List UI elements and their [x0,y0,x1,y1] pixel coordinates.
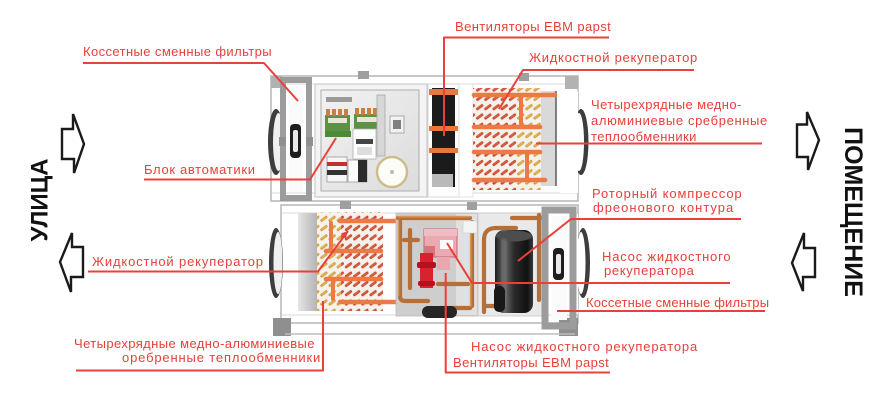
svg-text:Жидкостной рекуператор: Жидкостной рекуператор [529,50,698,65]
svg-text:оребренные теплообменники: оребренные теплообменники [122,350,321,365]
svg-text:Коссетные сменные фильтры: Коссетные сменные фильтры [586,295,769,310]
svg-text:теплообменники: теплообменники [591,129,697,144]
svg-text:фреонового контура: фреонового контура [593,200,734,215]
svg-text:Четырехрядные медно-алюминиевы: Четырехрядные медно-алюминиевые [74,336,315,351]
svg-text:ПОМЕЩЕНИЕ: ПОМЕЩЕНИЕ [839,127,867,297]
svg-text:Блок автоматики: Блок автоматики [144,162,256,177]
svg-text:Коссетные сменные фильтры: Коссетные сменные фильтры [83,44,272,59]
svg-text:Четырехрядные медно-: Четырехрядные медно- [591,97,742,112]
svg-text:алюминиевые сребренные: алюминиевые сребренные [591,113,768,128]
svg-text:рекуператора: рекуператора [604,263,695,278]
svg-text:Жидкостной рекуператор: Жидкостной рекуператор [92,254,264,269]
svg-text:Вентиляторы EBM papst: Вентиляторы EBM papst [453,355,609,370]
svg-text:УЛИЦА: УЛИЦА [27,159,54,242]
svg-text:Насос жидкостного: Насос жидкостного [602,249,731,264]
svg-text:Насос жидкостного рекуператора: Насос жидкостного рекуператора [471,339,698,354]
svg-text:Роторный компрессор: Роторный компрессор [592,186,743,201]
svg-text:Вентиляторы EBM papst: Вентиляторы EBM papst [455,19,611,34]
